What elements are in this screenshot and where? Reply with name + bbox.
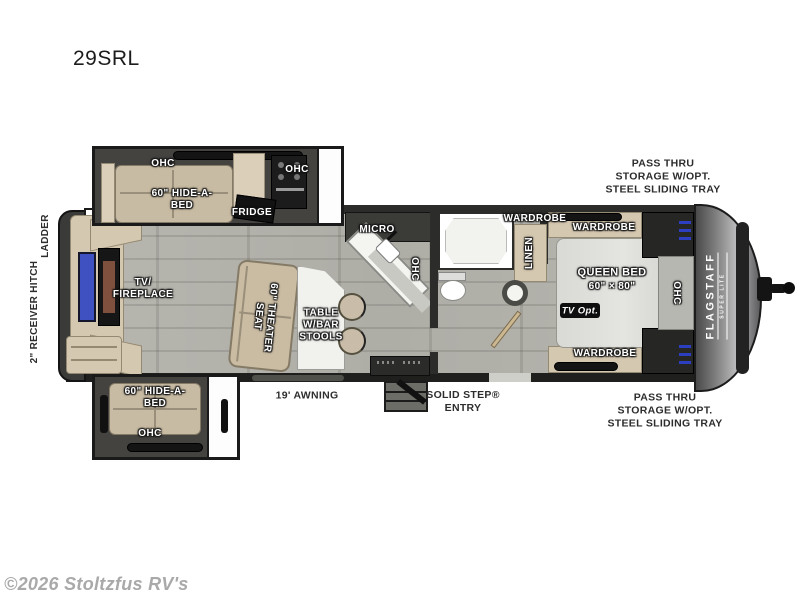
queen-bed-label: QUEEN BED [578, 267, 647, 280]
slide-top-ohc-label: OHC [151, 158, 174, 170]
slide-bottom-ohc-label: OHC [138, 428, 161, 440]
floorplan-canvas: 29SRL ©2026 Stoltzfus RV's PASS THRU STO… [0, 0, 800, 600]
awning-label: 19' AWNING [276, 389, 339, 402]
pass-thru-storage-label-bottom: PASS THRU STORAGE W/OPT. STEEL SLIDING T… [607, 391, 722, 430]
brand-label: FLAGSTAFF [705, 252, 717, 339]
watermark: ©2026 Stoltzfus RV's [4, 574, 189, 595]
bedroom-bottom-window [554, 362, 618, 371]
sofa-armrest [101, 163, 115, 223]
hide-a-bed-bottom-label: 60" HIDE-A- BED [125, 386, 186, 410]
bath-wall-left-lower [430, 352, 438, 374]
pass-thru-storage-label-top: PASS THRU STORAGE W/OPT. STEEL SLIDING T… [605, 157, 720, 196]
counter-ohc-label: OHC [408, 257, 420, 280]
wardrobe-top-label: WARDROBE [573, 222, 636, 234]
ladder-label: LADDER [40, 214, 53, 257]
entry-door-well [370, 356, 430, 376]
slideout-bottom-left-window [100, 395, 108, 433]
rear-bench [66, 336, 122, 374]
model-title: 29SRL [73, 47, 140, 71]
receiver-hitch-label: 2" RECEIVER HITCH [29, 261, 42, 364]
bath-wardrobe-label: WARDROBE [504, 213, 567, 225]
slideout-bottom-window [127, 443, 203, 452]
slideout-top [92, 146, 344, 226]
bedroom-cabinet-bottom [642, 328, 694, 374]
tv-fireplace-label: TV/ FIREPLACE [113, 277, 173, 301]
slideout-top-sidewall [317, 149, 341, 223]
slideout-bottom-sidewall [207, 377, 237, 457]
entry-steps [384, 381, 428, 412]
range-stove [271, 155, 307, 209]
toilet [440, 280, 466, 301]
table-label: TABLE W/BAR STOOLS [299, 307, 342, 342]
bed-size-label: 60" × 80" [589, 281, 636, 293]
bath-sink [502, 280, 528, 306]
range-ohc-label: OHC [285, 164, 308, 176]
linen-label: LINEN [524, 237, 536, 269]
bath-wall-left [430, 208, 438, 328]
bedroom-cabinet-top [642, 212, 694, 258]
brand-mark: FLAGSTAFF SUPER LITE [705, 252, 728, 339]
bedroom-ohc-label: OHC [670, 281, 682, 304]
fridge-label: FRIDGE [232, 207, 272, 219]
wardrobe-bottom-label: WARDROBE [574, 348, 637, 360]
hitch-knob [783, 282, 795, 294]
micro-label: MICRO [359, 224, 394, 236]
shower [438, 212, 514, 270]
hide-a-bed-top-label: 60" HIDE-A- BED [152, 188, 213, 212]
solid-step-entry-label: SOLID STEP® ENTRY [426, 389, 499, 415]
tv [78, 252, 96, 322]
bottom-window [252, 375, 344, 381]
bath-doorway [489, 373, 531, 382]
tv-opt-label: TV Opt. [562, 305, 599, 316]
brand-sub-label: SUPER LITE [718, 252, 728, 339]
